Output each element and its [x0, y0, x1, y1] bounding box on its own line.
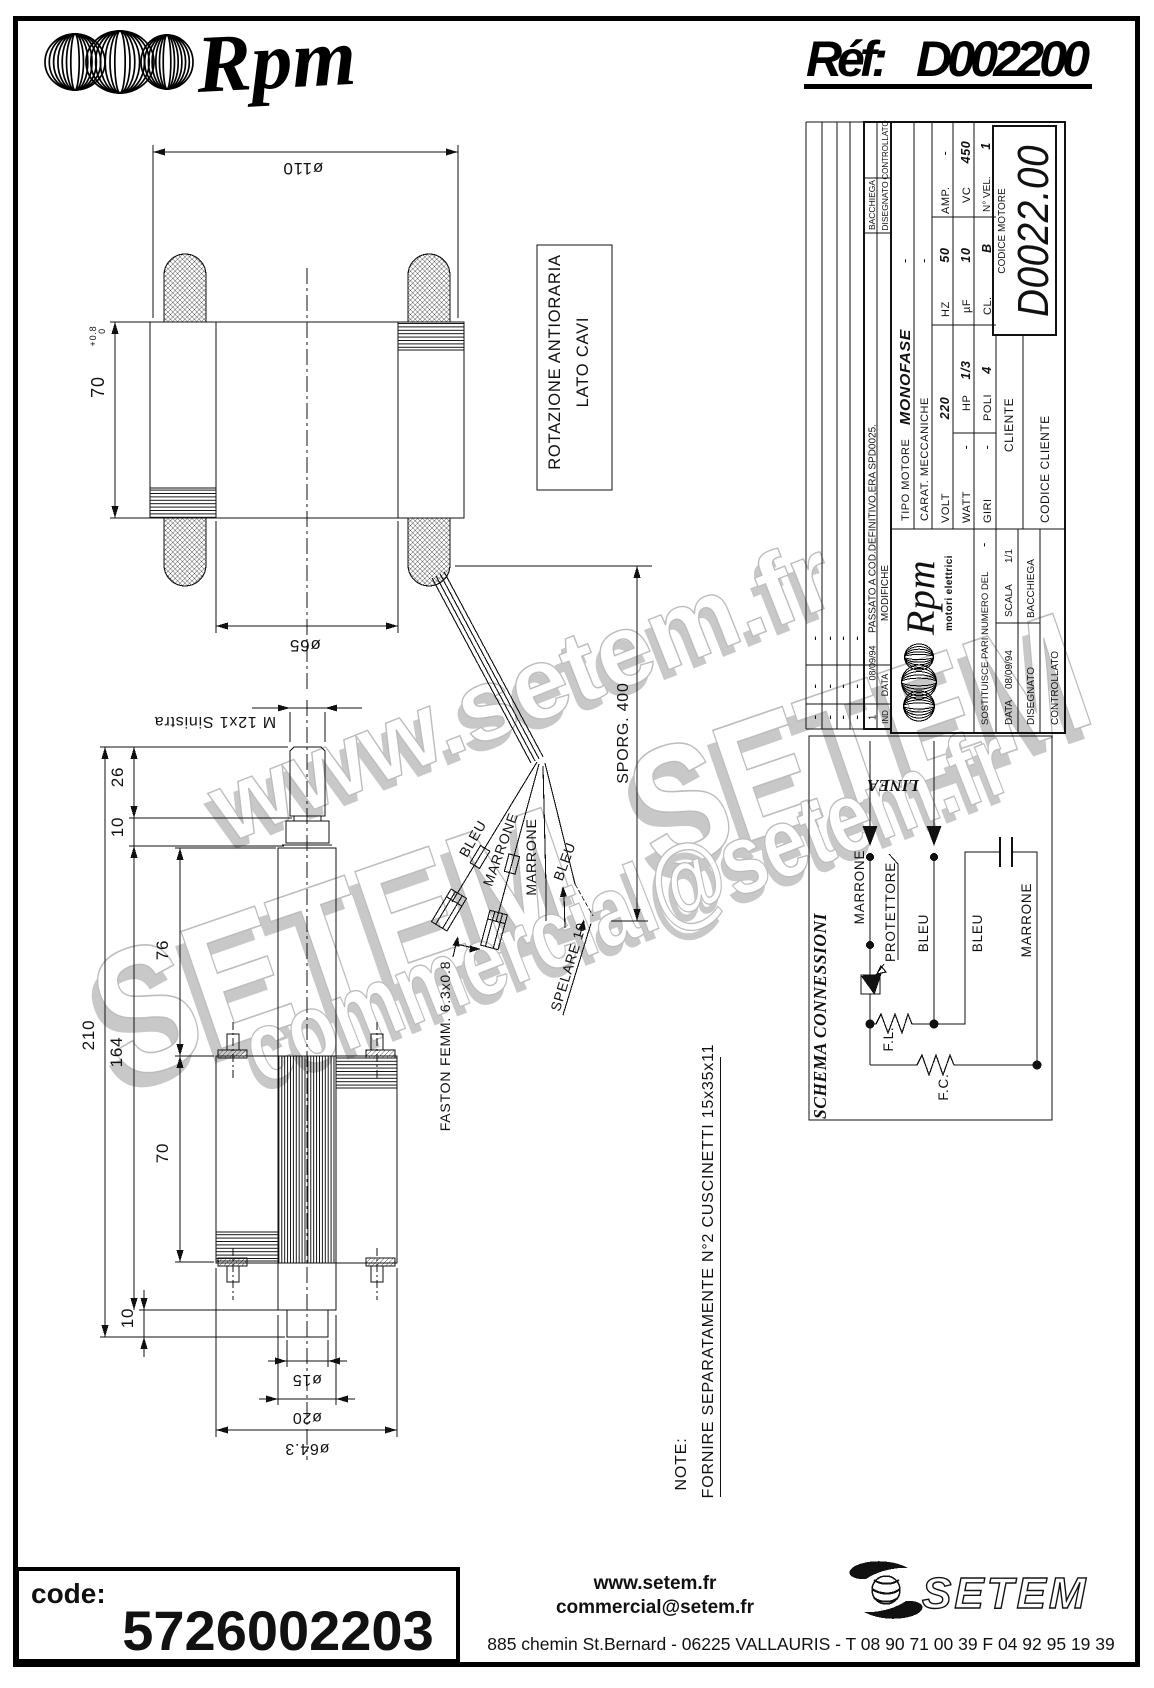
svg-text:70: 70 [153, 1143, 172, 1164]
svg-text:50: 50 [938, 247, 952, 262]
svg-text:F.L.: F.L. [881, 1027, 896, 1052]
svg-text:1: 1 [979, 142, 993, 150]
svg-text:-: - [806, 683, 822, 688]
svg-text:MARRONE: MARRONE [523, 818, 539, 895]
svg-text:164: 164 [107, 1037, 126, 1068]
svg-text:PASSATO A COD.DEFINITIVO,ERA S: PASSATO A COD.DEFINITIVO,ERA SPD0025. [868, 424, 879, 633]
svg-text:CARAT. MECCANICHE: CARAT. MECCANICHE [919, 397, 931, 521]
svg-text:TIPO MOTORE: TIPO MOTORE [900, 439, 912, 521]
svg-text:-: - [848, 683, 864, 688]
svg-text:D0022.00: D0022.00 [1009, 145, 1058, 317]
svg-text:220: 220 [938, 397, 952, 421]
svg-text:M 12x1 Sinistra: M 12x1 Sinistra [154, 713, 276, 730]
svg-text:SCALA: SCALA [1004, 584, 1015, 617]
svg-text:LINEA: LINEA [867, 776, 920, 795]
svg-text:10: 10 [108, 817, 127, 838]
svg-text:ø110: ø110 [283, 159, 324, 178]
svg-text:DISEGNATO: DISEGNATO [880, 181, 890, 231]
svg-text:4: 4 [980, 366, 994, 375]
svg-text:1: 1 [868, 714, 879, 720]
svg-text:µF: µF [961, 299, 973, 313]
svg-text:-: - [976, 542, 991, 547]
svg-text:26: 26 [108, 767, 127, 788]
svg-text:DATA: DATA [1004, 699, 1015, 725]
svg-text:CL.: CL. [982, 296, 994, 315]
svg-text:08/09/94: 08/09/94 [868, 645, 878, 680]
svg-text:PROTETTORE: PROTETTORE [883, 862, 898, 962]
svg-text:ø20: ø20 [292, 1409, 322, 1426]
svg-text:-: - [806, 714, 822, 719]
svg-text:motori elettrici: motori elettrici [944, 555, 955, 631]
svg-text:76: 76 [153, 940, 172, 961]
svg-text:VC: VC [961, 187, 973, 203]
svg-text:5726002203: 5726002203 [122, 1599, 433, 1662]
svg-text:POLI: POLI [982, 394, 994, 421]
svg-text:885 chemin St.Bernard - 0622: 885 chemin St.Bernard - 06225 VALLAURIS … [487, 1634, 1115, 1654]
svg-text:ø15: ø15 [292, 1371, 322, 1388]
svg-text:BLEU: BLEU [970, 914, 985, 952]
svg-text:-: - [848, 635, 864, 640]
svg-text:210: 210 [79, 1020, 98, 1051]
svg-text:www.setem.fr: www.setem.fr [593, 1573, 717, 1594]
svg-text:MONOFASE: MONOFASE [897, 329, 914, 425]
svg-text:-: - [897, 258, 912, 263]
svg-text:-: - [806, 635, 822, 640]
svg-text:code:: code: [31, 1578, 106, 1609]
svg-text:-: - [958, 445, 973, 450]
svg-text:SCHEMA CONNESSIONI: SCHEMA CONNESSIONI [810, 912, 830, 1119]
svg-text:MARRONE: MARRONE [1019, 883, 1034, 958]
svg-text:NOTE:: NOTE: [673, 1438, 690, 1491]
svg-text:CONTROLLATO: CONTROLLATO [881, 120, 890, 179]
svg-text:N° VEL.: N° VEL. [982, 176, 993, 212]
svg-text:CONTROLLATO: CONTROLLATO [1050, 651, 1061, 725]
svg-text:0: 0 [97, 328, 107, 334]
svg-text:BLEU: BLEU [916, 914, 931, 952]
svg-text:GIRI: GIRI [982, 498, 994, 523]
svg-text:DISEGNATO: DISEGNATO [1026, 667, 1037, 725]
svg-text:AMP.: AMP. [940, 187, 952, 214]
svg-text:WATT: WATT [961, 491, 973, 523]
svg-text:MARRONE: MARRONE [852, 850, 867, 925]
svg-text:10: 10 [959, 247, 973, 262]
svg-text:FORNIRE SEPARATAMENTE N°2 CUSC: FORNIRE SEPARATAMENTE N°2 CUSCINETTI 15x… [700, 1044, 717, 1499]
svg-text:CODICE MOTORE: CODICE MOTORE [997, 188, 1008, 274]
svg-text:IND: IND [881, 710, 890, 724]
svg-text:1/3: 1/3 [959, 360, 973, 379]
svg-text:SPORG. 400: SPORG. 400 [615, 682, 632, 783]
svg-text:commercial@setem.fr: commercial@setem.fr [556, 1597, 755, 1618]
svg-text:HP: HP [961, 395, 973, 411]
svg-text:CODICE CLIENTE: CODICE CLIENTE [1038, 415, 1052, 523]
svg-text:SOSTITUISCE PARI NUMERO DEL: SOSTITUISCE PARI NUMERO DEL [980, 572, 991, 725]
svg-text:Rpm: Rpm [193, 11, 358, 110]
svg-text:70: 70 [88, 376, 108, 398]
svg-text:450: 450 [959, 141, 973, 165]
svg-text:BACCHIEGA: BACCHIEGA [867, 180, 877, 230]
svg-text:-: - [848, 714, 864, 719]
svg-text:ROTAZIONE ANTIORARIA: ROTAZIONE ANTIORARIA [546, 254, 564, 470]
svg-text:SETEM: SETEM [922, 1569, 1089, 1618]
svg-text:Rpm: Rpm [898, 560, 943, 636]
svg-text:BACCHIEGA: BACCHIEGA [1026, 559, 1037, 618]
svg-text:Réf:: Réf: [806, 31, 888, 87]
svg-text:ø64.3: ø64.3 [285, 1440, 330, 1457]
svg-text:DATA: DATA [880, 674, 890, 697]
svg-text:VOLT: VOLT [940, 493, 952, 523]
svg-text:-: - [937, 151, 952, 156]
svg-text:D002200: D002200 [916, 31, 1090, 87]
svg-text:LATO CAVI: LATO CAVI [574, 317, 592, 408]
svg-text:B: B [980, 243, 994, 253]
svg-text:CLIENTE: CLIENTE [1002, 398, 1016, 452]
svg-text:10: 10 [118, 1308, 137, 1329]
svg-text:1/1: 1/1 [1004, 549, 1015, 563]
svg-text:FASTON FEMM. 6.3x0.8: FASTON FEMM. 6.3x0.8 [437, 961, 453, 1132]
svg-text:MODIFICHE: MODIFICHE [880, 565, 891, 621]
svg-text:ø65: ø65 [289, 636, 321, 655]
svg-text:-: - [916, 258, 931, 263]
svg-text:HZ: HZ [940, 301, 952, 317]
svg-text:-: - [979, 445, 994, 450]
svg-text:08/09/94: 08/09/94 [1004, 650, 1015, 689]
svg-text:F.C.: F.C. [936, 1073, 951, 1100]
